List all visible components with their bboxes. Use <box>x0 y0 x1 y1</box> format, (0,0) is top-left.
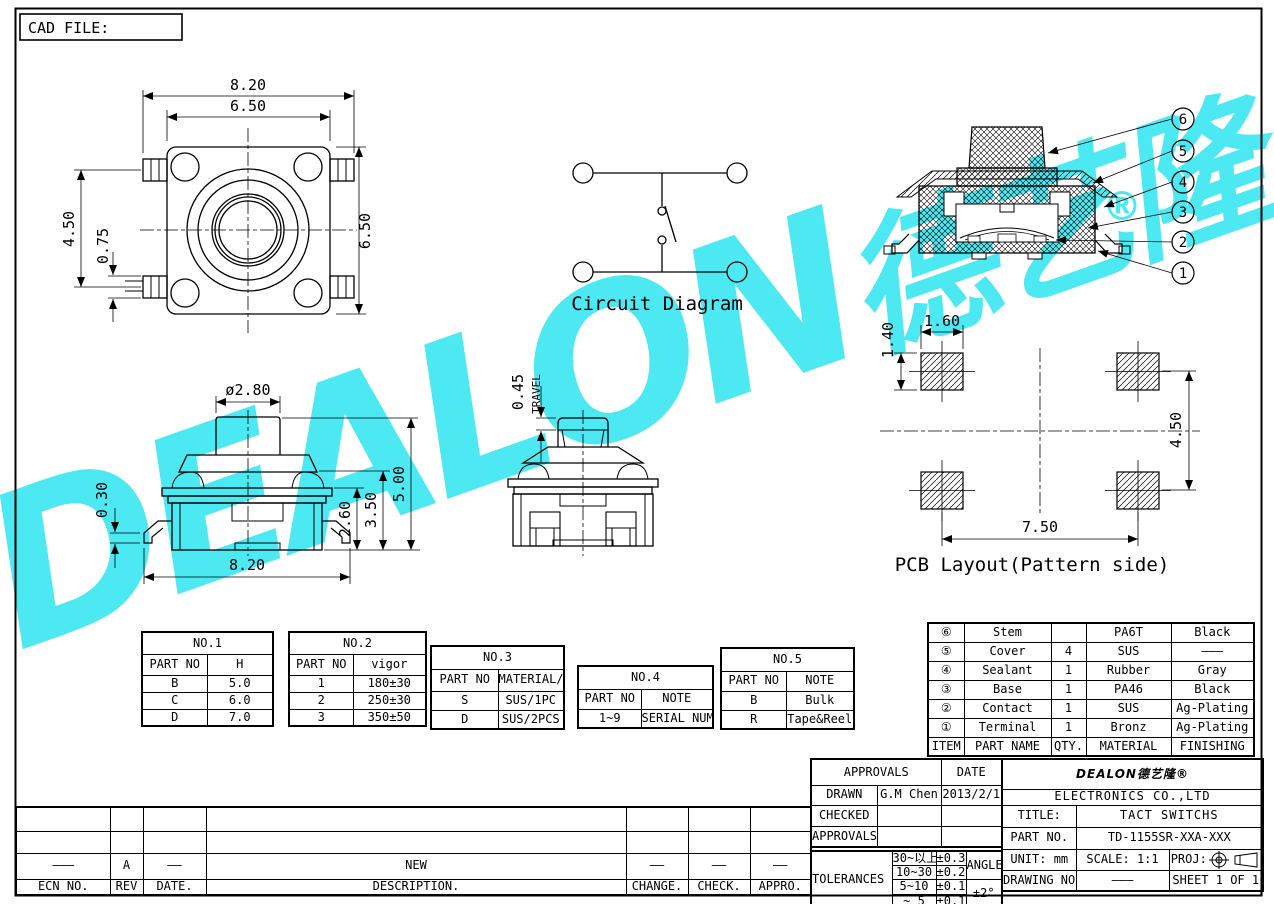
table-no5-title: NO.5 <box>721 648 854 671</box>
rev-value: A <box>110 853 143 879</box>
table-no4: NO.4 PART NONOTE 1~9SERIAL NUMBER <box>577 665 714 729</box>
balloon-3: 3 <box>1179 205 1187 221</box>
cad-file-label: CAD FILE: <box>28 19 109 37</box>
tol-value: ±0.20 <box>936 866 966 880</box>
cell: SERIAL NUMBER <box>641 709 713 728</box>
bom-item: ① <box>928 718 964 737</box>
tolerances-table: TOLERANCES ARE 30~以上 ±0.30 ANGLE 10~30 ±… <box>810 850 1003 904</box>
cell: 3 <box>289 709 353 726</box>
dim-750: 7.50 <box>1022 518 1058 536</box>
bom-finishing: Ag-Plating <box>1171 699 1254 718</box>
col-header: PART NO <box>721 671 786 691</box>
tol-value: ±0.30 <box>936 851 966 866</box>
bom-finishing: Ag-Plating <box>1171 718 1254 737</box>
drawn-name: G.M Chen <box>877 785 941 805</box>
approvals-label: APPROVALS <box>811 826 877 847</box>
rev-row-cell <box>750 831 811 853</box>
col-header: vigor <box>353 654 426 675</box>
balloon-6: 6 <box>1179 112 1187 128</box>
col-header: H <box>207 654 273 675</box>
cell: SUS/1PC <box>498 691 564 710</box>
description-header: DESCRIPTION. <box>206 879 626 895</box>
change-header: CHANGE. <box>626 879 688 895</box>
cell: B <box>142 675 207 692</box>
bom-item: ⑤ <box>928 642 964 661</box>
title-label: TITLE: <box>1002 805 1076 827</box>
angle-label: ANGLE <box>966 851 1002 880</box>
terminal-lead-left <box>892 234 919 253</box>
tol-value: ±0.10 <box>936 894 966 904</box>
pcb-layout <box>880 341 1200 521</box>
checked-label: CHECKED <box>811 805 877 826</box>
front-view-dimensions: ø2.80 0.30 8.20 2.60 3.50 5.00 <box>93 381 420 584</box>
unit-label: UNIT: mm <box>1002 849 1076 870</box>
rev-row-cell <box>688 807 750 831</box>
cell: D <box>431 710 498 729</box>
bom-qty: 1 <box>1051 661 1086 680</box>
terminal-lead-right <box>1095 234 1122 253</box>
projection-symbol-icon <box>1209 851 1261 869</box>
dim-450-left: 4.50 <box>60 211 78 247</box>
bom-finishing: Black <box>1171 680 1254 699</box>
bom-item: ⑥ <box>928 623 964 642</box>
bom-qty <box>1051 623 1086 642</box>
table-no3-title: NO.3 <box>431 646 564 669</box>
bom-part-name: Contact <box>964 699 1051 718</box>
bom-part-name: Terminal <box>964 718 1051 737</box>
col-header: PART NO <box>431 669 498 691</box>
drawn-label: DRAWN <box>811 785 877 805</box>
table-no1-title: NO.1 <box>142 632 273 654</box>
dim-500: 5.00 <box>390 466 408 502</box>
cell: 1 <box>289 675 353 692</box>
col-header: NOTE <box>786 671 854 691</box>
travel-dimensions: 0.45 TRAVEL <box>509 374 556 462</box>
circuit-diagram: Circuit Diagram <box>571 163 747 315</box>
travel-view <box>508 410 658 556</box>
company-logo: DEALON德艺隆® <box>1002 759 1263 789</box>
tol-range: ~ 5 <box>892 894 936 904</box>
revision-table: ——— A —— NEW —— —— —— ECN NO. REV DATE. … <box>15 806 812 896</box>
cell: 180±30 <box>353 675 426 692</box>
stem-section <box>969 127 1045 168</box>
col-header: PART NO <box>142 654 207 675</box>
table-no5: NO.5 PART NONOTE BBulk RTape&Reel <box>720 647 855 730</box>
rev-row-cell <box>143 807 206 831</box>
col-header: PART NO <box>289 654 353 675</box>
dim-450-pcb: 4.50 <box>1167 412 1185 448</box>
drawn-date: 2013/2/1 <box>941 785 1002 805</box>
front-view <box>144 410 350 556</box>
cell: 7.0 <box>207 709 273 726</box>
bom-finishing: ——— <box>1171 642 1254 661</box>
part-no-label: PART NO. <box>1002 827 1076 849</box>
circuit-diagram-label: Circuit Diagram <box>571 293 743 315</box>
company-name: ELECTRONICS CO.,LTD <box>1002 789 1263 805</box>
sheet-label: SHEET 1 OF 1 <box>1169 870 1263 891</box>
dim-650-right: 6.50 <box>356 213 374 249</box>
bom-qty: 1 <box>1051 699 1086 718</box>
rev-row-cell <box>16 831 110 853</box>
dim-160: 1.60 <box>924 312 960 330</box>
dim-045-travel: 0.45 <box>509 374 527 410</box>
bom-material: PA6T <box>1086 623 1171 642</box>
bom-material: SUS <box>1086 699 1171 718</box>
bom-item: ④ <box>928 661 964 680</box>
top-view-dimensions: 8.20 6.50 6.50 4.50 0.75 <box>60 76 374 322</box>
cell: D <box>142 709 207 726</box>
balloon-5: 5 <box>1179 144 1187 160</box>
table-no1: NO.1 PART NOH B5.0 C6.0 D7.0 <box>141 631 274 727</box>
bom-part-name: Sealant <box>964 661 1051 680</box>
rev-row-cell <box>626 807 688 831</box>
bom-material: SUS <box>1086 642 1171 661</box>
check-header: CHECK. <box>688 879 750 895</box>
bom-part-name: Stem <box>964 623 1051 642</box>
pcb-layout-label: PCB Layout(Pattern side) <box>895 554 1170 576</box>
cell: Bulk <box>786 691 854 710</box>
bom-header-finishing: FINISHING <box>1171 737 1254 756</box>
col-header: PART NO <box>578 689 641 709</box>
drawing-sheet: DEALON德艺隆 ® CAD FILE: <box>0 0 1274 904</box>
bom-finishing: Gray <box>1171 661 1254 680</box>
part-no-value: TD-1155SR-XXA-XXX <box>1076 827 1263 849</box>
approvals-date <box>941 826 1002 847</box>
bom-qty: 1 <box>1051 718 1086 737</box>
bom-header-name: PART NAME <box>964 737 1051 756</box>
tol-range: 10~30 <box>892 866 936 880</box>
bom-finishing: Black <box>1171 623 1254 642</box>
cell: 250±30 <box>353 692 426 709</box>
dim-140: 1.40 <box>879 322 897 358</box>
tol-range: 5~10 <box>892 880 936 894</box>
appro-value: —— <box>750 853 811 879</box>
checked-date <box>941 805 1002 826</box>
date-header: DATE. <box>143 879 206 895</box>
dim-350: 3.50 <box>362 492 380 528</box>
cell: SUS/2PCS <box>498 710 564 729</box>
check-value: —— <box>688 853 750 879</box>
drawing-no-value: ——— <box>1076 870 1169 891</box>
approvals-name <box>877 826 941 847</box>
cell: B <box>721 691 786 710</box>
bom-part-name: Base <box>964 680 1051 699</box>
rev-row-cell <box>626 831 688 853</box>
ecn-no-value: ——— <box>16 853 110 879</box>
rev-row-cell <box>16 807 110 831</box>
rev-row-cell <box>688 831 750 853</box>
dim-820-front: 8.20 <box>229 556 265 574</box>
balloon-2: 2 <box>1179 235 1187 251</box>
bom-table: ⑥ Stem PA6T Black ⑤ Cover 4 SUS ——— ④ Se… <box>927 622 1255 757</box>
col-header: MATERIAL/QTY <box>498 669 564 691</box>
bom-qty: 1 <box>1051 680 1086 699</box>
cell: 6.0 <box>207 692 273 709</box>
table-no3: NO.3 PART NOMATERIAL/QTY SSUS/1PC DSUS/2… <box>430 645 565 730</box>
rev-row-cell <box>750 807 811 831</box>
drawing-no-label: DRAWING NO. <box>1002 870 1076 891</box>
bom-item: ② <box>928 699 964 718</box>
cell: C <box>142 692 207 709</box>
dim-dia-280: ø2.80 <box>225 381 270 399</box>
approvals-header: APPROVALS <box>811 759 941 785</box>
change-value: —— <box>626 853 688 879</box>
balloon-4: 4 <box>1179 175 1187 191</box>
dim-030: 0.30 <box>93 482 111 518</box>
bom-header-material: MATERIAL <box>1086 737 1171 756</box>
bom-item: ③ <box>928 680 964 699</box>
projection-cell: PROJ: <box>1169 849 1263 870</box>
pcb-dimensions: 1.60 1.40 4.50 7.50 PCB Layout(Pattern s… <box>879 312 1196 576</box>
bom-material: Rubber <box>1086 661 1171 680</box>
appro-header: APPRO. <box>750 879 811 895</box>
tolerances-label: TOLERANCES ARE <box>811 851 892 904</box>
cell: 5.0 <box>207 675 273 692</box>
rev-date-value: —— <box>143 853 206 879</box>
top-view <box>125 128 357 333</box>
table-no2: NO.2 PART NOvigor 1180±30 2250±30 3350±5… <box>288 631 427 727</box>
rev-row-cell <box>110 807 143 831</box>
section-view <box>884 127 1130 259</box>
bom-material: PA46 <box>1086 680 1171 699</box>
col-header: NOTE <box>641 689 713 709</box>
bom-header-item: ITEM <box>928 737 964 756</box>
angle-value: ±2° <box>966 880 1002 904</box>
cell: Tape&Reel <box>786 710 854 729</box>
rev-header: REV <box>110 879 143 895</box>
rev-row-cell <box>110 831 143 853</box>
bom-material: Bronz <box>1086 718 1171 737</box>
tol-range: 30~以上 <box>892 851 936 866</box>
cell: 350±50 <box>353 709 426 726</box>
bom-qty: 4 <box>1051 642 1086 661</box>
cell: 2 <box>289 692 353 709</box>
rev-row-cell <box>206 831 626 853</box>
rev-row-cell <box>143 831 206 853</box>
description-value: NEW <box>206 853 626 879</box>
front-lead-left <box>144 521 172 543</box>
cell: R <box>721 710 786 729</box>
travel-label: TRAVEL <box>530 374 543 414</box>
bom-header-qty: QTY. <box>1051 737 1086 756</box>
approvals-table: APPROVALS DATE DRAWN G.M Chen 2013/2/1 C… <box>810 758 1003 848</box>
top-view-centerlines <box>140 128 357 333</box>
dim-650-top: 6.50 <box>230 97 266 115</box>
dim-075-left: 0.75 <box>94 228 112 264</box>
cell: S <box>431 691 498 710</box>
bom-part-name: Cover <box>964 642 1051 661</box>
proj-label: PROJ: <box>1171 853 1207 866</box>
checked-name <box>877 805 941 826</box>
title-value: TACT SWITCHS <box>1076 805 1263 827</box>
dim-260: 2.60 <box>336 501 354 537</box>
balloon-1: 1 <box>1179 266 1187 282</box>
date-header: DATE <box>941 759 1002 785</box>
scale-label: SCALE: 1:1 <box>1076 849 1169 870</box>
dim-820-top: 8.20 <box>230 76 266 94</box>
tol-value: ±0.15 <box>936 880 966 894</box>
cell: 1~9 <box>578 709 641 728</box>
rev-row-cell <box>206 807 626 831</box>
title-info-table: DEALON德艺隆® ELECTRONICS CO.,LTD TITLE: TA… <box>1001 758 1264 892</box>
table-no2-title: NO.2 <box>289 632 426 654</box>
ecn-no-header: ECN NO. <box>16 879 110 895</box>
table-no4-title: NO.4 <box>578 666 713 689</box>
